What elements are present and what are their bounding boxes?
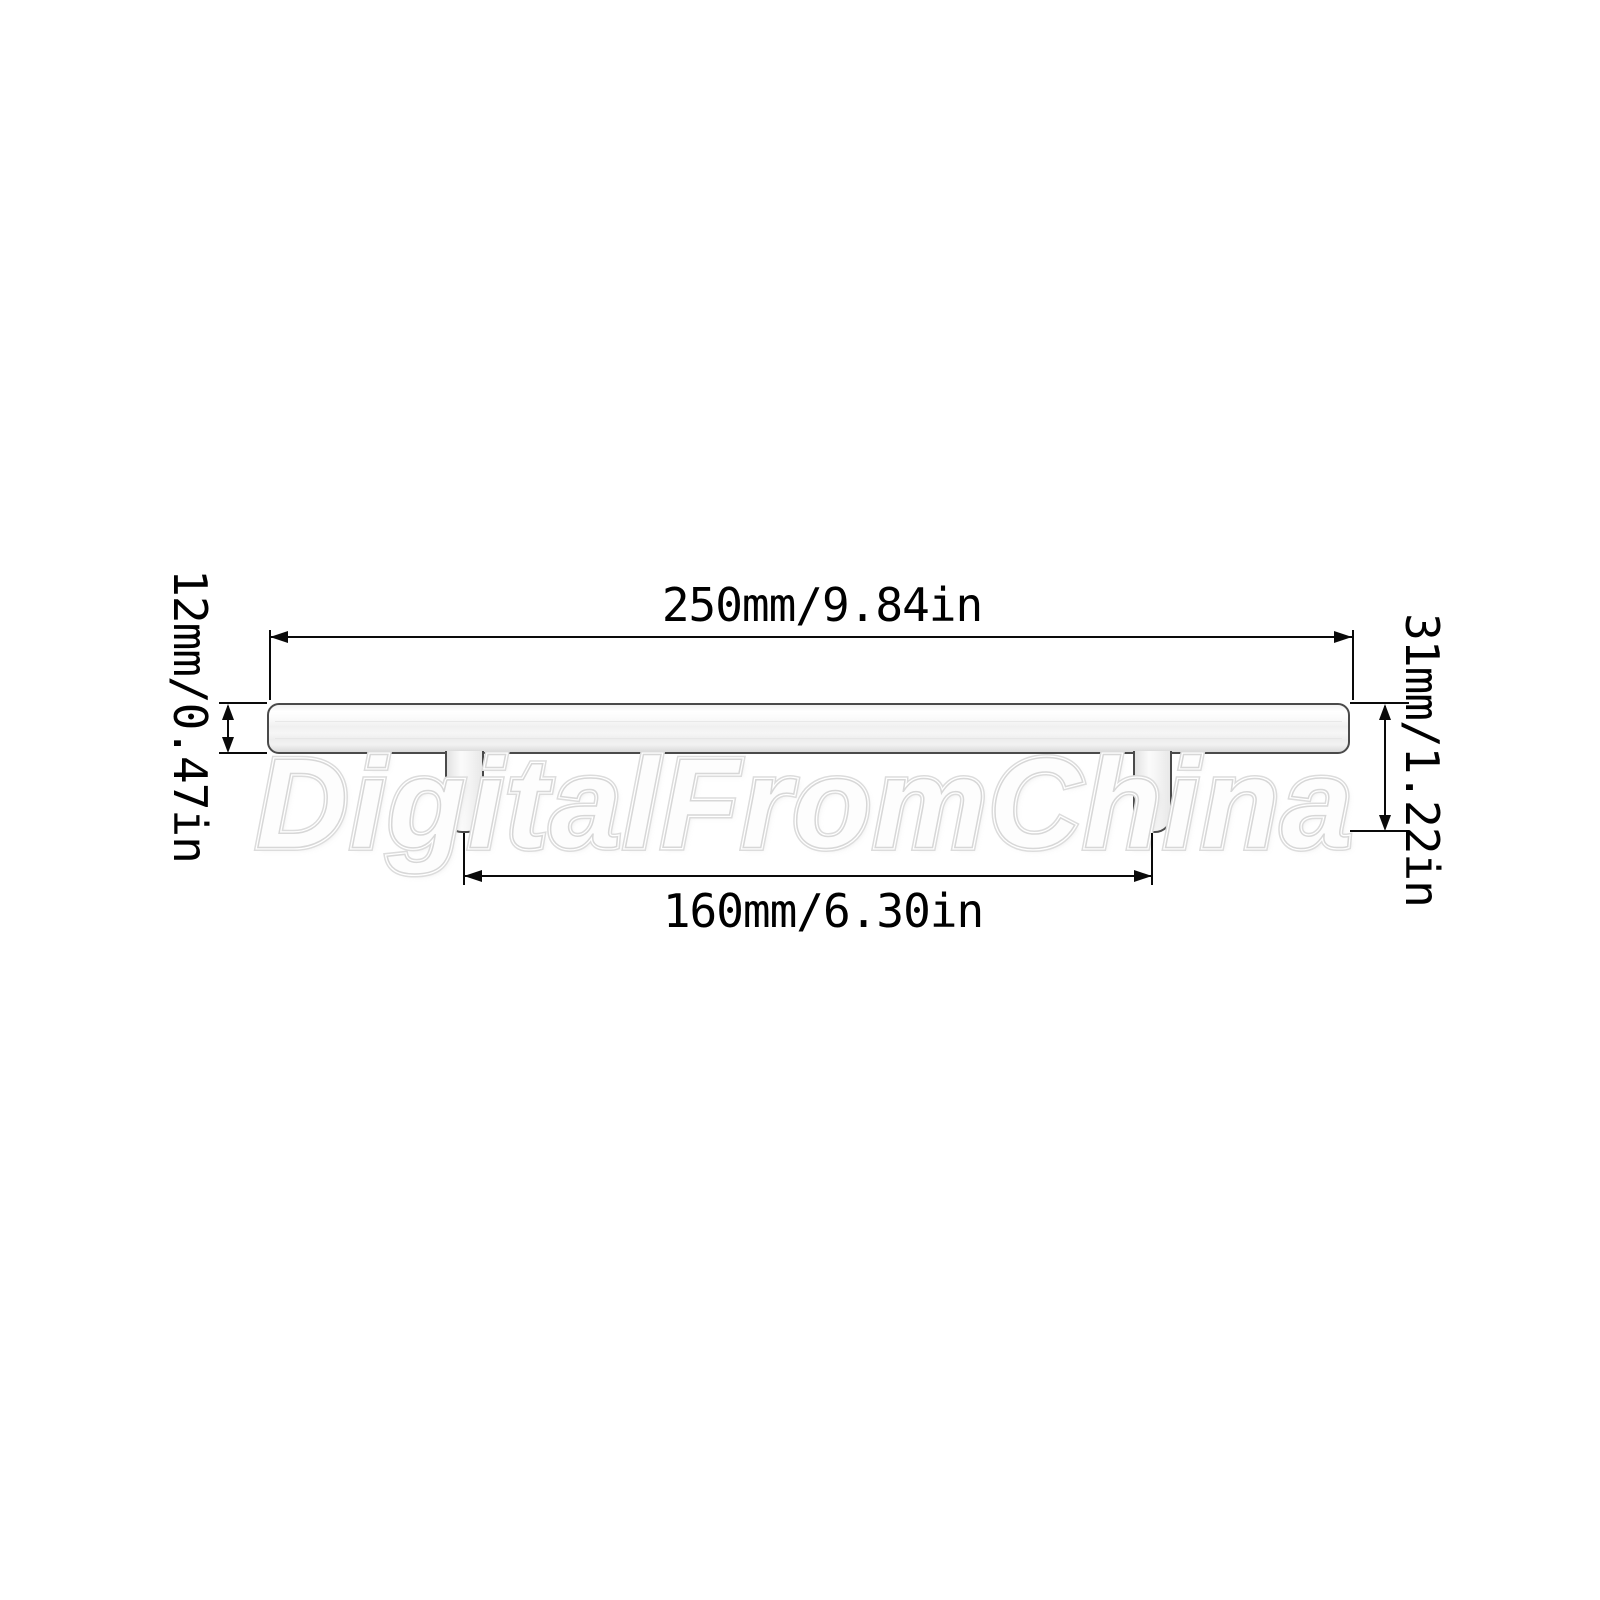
extension-line-right	[1352, 630, 1354, 700]
arrowhead-up-icon	[1379, 704, 1391, 720]
arrowhead-right-icon	[1334, 631, 1352, 643]
label-overall-height: 31mm/1.22in	[1399, 613, 1445, 907]
arrowhead-left-icon	[270, 631, 288, 643]
bar-highlight-line	[275, 721, 1342, 722]
label-overall-length: 250mm/9.84in	[662, 582, 982, 628]
arrowhead-left-icon	[464, 870, 482, 882]
label-bar-diameter: 12mm/0.47in	[167, 569, 213, 863]
arrowhead-up-icon	[222, 704, 234, 720]
dim-line-overall-height	[1384, 706, 1386, 828]
arrowhead-right-icon	[1134, 870, 1152, 882]
arrowhead-down-icon	[1379, 815, 1391, 831]
label-hole-spacing: 160mm/6.30in	[663, 888, 983, 934]
watermark-text: DigitalFromChina	[256, 731, 1355, 878]
dim-line-hole-spacing	[465, 875, 1152, 877]
dim-line-overall-length	[271, 636, 1352, 638]
product-dimension-diagram: DigitalFromChina DigitalFromChina Digita…	[0, 0, 1600, 1600]
arrowhead-down-icon	[222, 737, 234, 753]
